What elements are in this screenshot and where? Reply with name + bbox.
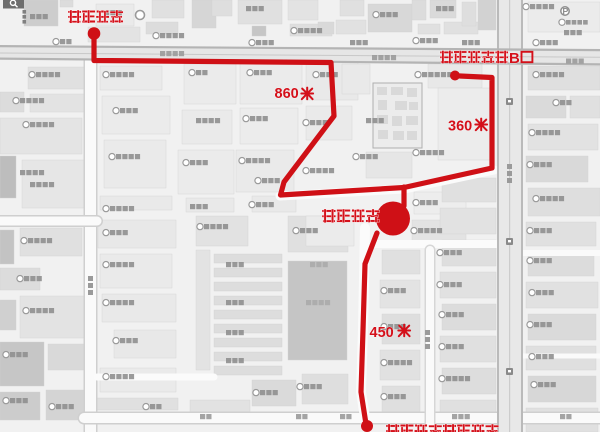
svg-text:450: 450 (370, 325, 394, 341)
svg-text:P: P (562, 6, 568, 16)
svg-text:860: 860 (275, 86, 299, 102)
svg-text:360: 360 (448, 119, 472, 135)
svg-text:B: B (509, 50, 520, 67)
